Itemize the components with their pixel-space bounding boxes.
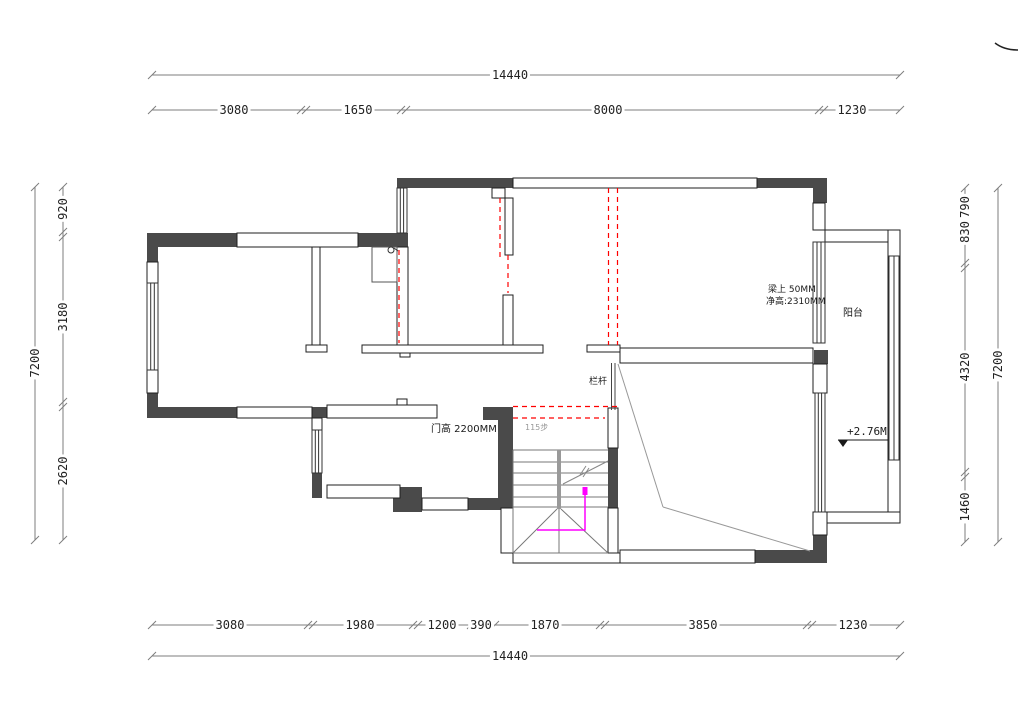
dim-right-seg-1: 830	[959, 219, 971, 245]
dim-top-seg-1: 1650	[342, 104, 375, 116]
dim-bottom-seg-0: 3080	[214, 619, 247, 631]
dimension-ticks	[31, 71, 1002, 660]
dim-right-seg-2: 4320	[959, 351, 971, 384]
dimension-lines	[35, 75, 998, 656]
level-mark-label: +2.76M	[847, 426, 887, 439]
diagonal-lines	[618, 364, 810, 551]
beam-note-line2: 净高:2310MM	[766, 297, 825, 307]
dim-bottom-seg-4: 1870	[529, 619, 562, 631]
door-height-note: 门高 2200MM	[431, 424, 497, 436]
dim-bottom-seg-6: 1230	[837, 619, 870, 631]
dim-left-overall: 7200	[29, 347, 41, 380]
dim-bottom-seg-2: 1200	[426, 619, 459, 631]
dim-left-seg-1: 3180	[57, 301, 69, 334]
stairs	[513, 450, 608, 553]
floor-plan-canvas: 14440 3080 1650 8000 1230 3080 1980 1200…	[0, 0, 1020, 720]
dim-left-seg-2: 2620	[57, 455, 69, 488]
hinge-symbol	[491, 490, 497, 496]
stair-railing	[612, 363, 616, 410]
dim-bottom-overall: 14440	[490, 650, 530, 662]
dim-top-seg-3: 1230	[836, 104, 869, 116]
dim-bottom-seg-5: 3850	[687, 619, 720, 631]
railing-label: 栏杆	[589, 377, 607, 387]
balcony-label: 阳台	[843, 308, 863, 320]
corner-arc	[995, 43, 1018, 50]
dim-right-seg-0: 790	[959, 194, 971, 220]
dim-bottom-seg-3: 390	[468, 619, 494, 631]
dim-top-seg-2: 8000	[592, 104, 625, 116]
dim-left-seg-0: 920	[57, 196, 69, 222]
level-mark-symbol	[838, 440, 888, 447]
dim-top-overall: 14440	[490, 69, 530, 81]
dim-right-seg-3: 1460	[959, 491, 971, 524]
dim-top-seg-0: 3080	[218, 104, 251, 116]
stair-route-arrow	[537, 487, 588, 530]
stair-steps-note: 115步	[525, 423, 548, 432]
dim-right-overall: 7200	[992, 349, 1004, 382]
beam-note-line1: 梁上 50MM	[768, 285, 816, 295]
dim-bottom-seg-1: 1980	[344, 619, 377, 631]
